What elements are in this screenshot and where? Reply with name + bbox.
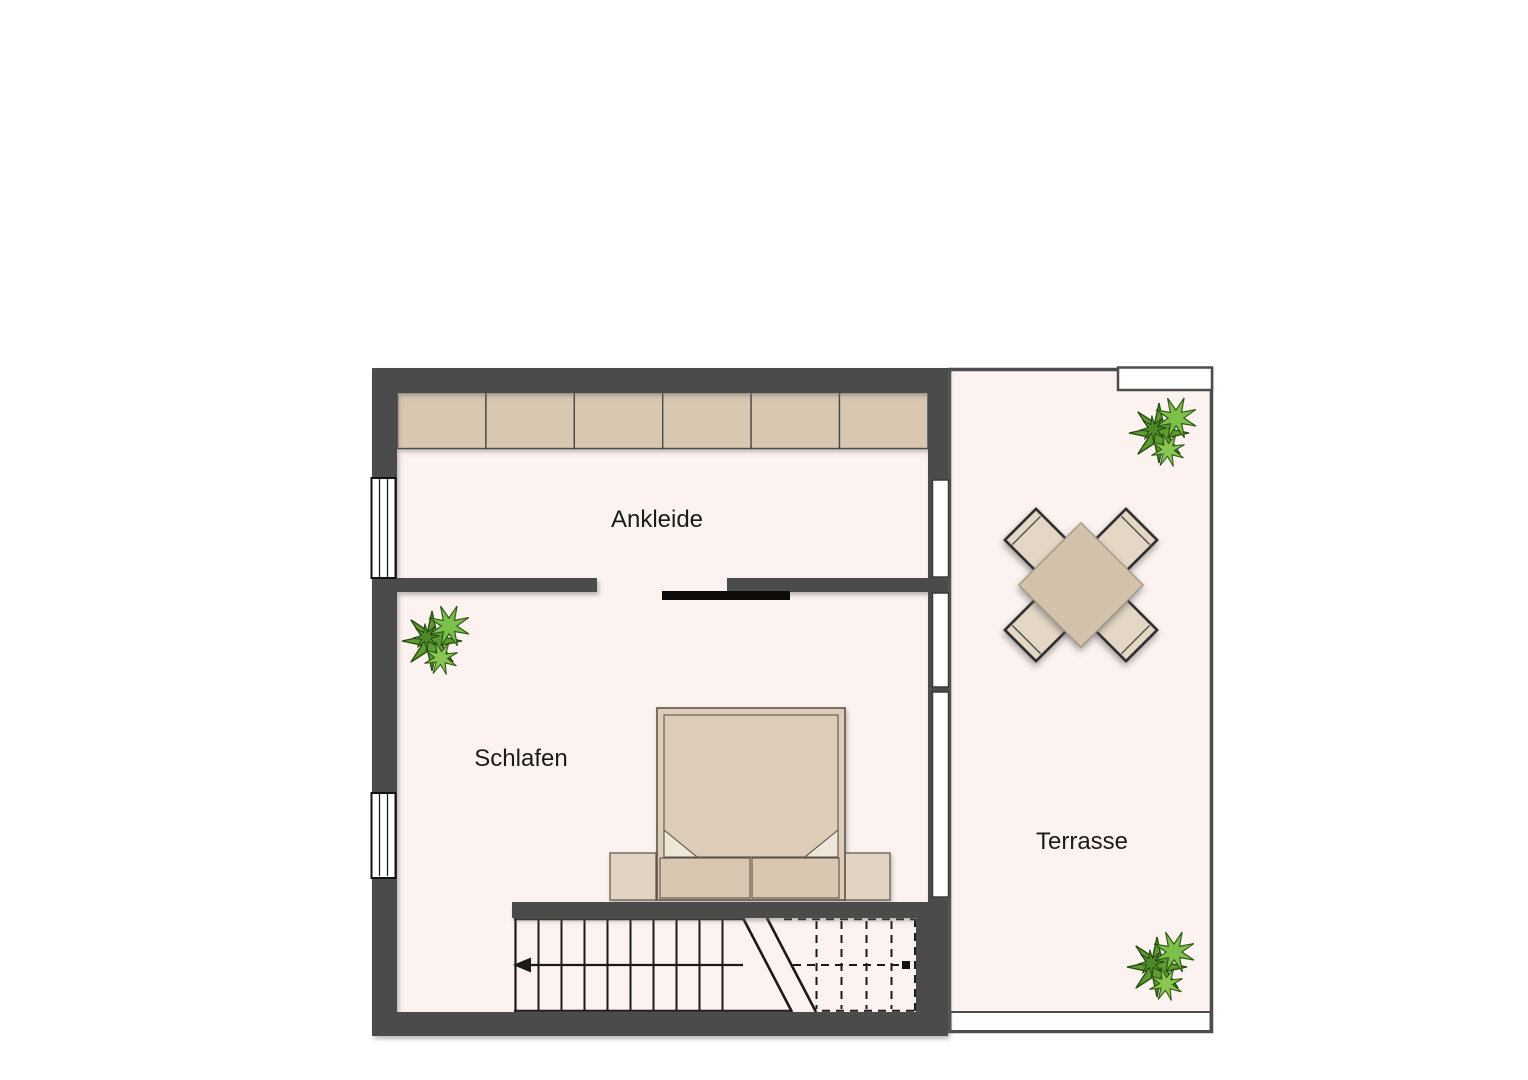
- wall-above-stairs: [512, 902, 948, 918]
- left-window-upper: [372, 478, 396, 578]
- room-label-schlafen: Schlafen: [474, 745, 567, 772]
- pillow-left: [660, 858, 750, 898]
- terrace-seating-group: [1005, 509, 1157, 661]
- wardrobe-unit: [663, 393, 751, 449]
- wardrobe-unit: [751, 393, 839, 449]
- terrace-top-recess: [1118, 368, 1212, 391]
- wardrobe-row: [398, 393, 929, 449]
- wardrobe-unit: [840, 393, 929, 449]
- room-label-terrasse: Terrasse: [1036, 828, 1128, 855]
- terrace-door-schlafen: [933, 692, 949, 897]
- wardrobe-unit: [486, 393, 574, 449]
- nightstand-right: [844, 853, 890, 900]
- terrace-window-schlafen-upper: [933, 593, 949, 687]
- floor-plan-canvas: Ankleide Schlafen Terrasse: [0, 0, 1528, 1080]
- wall-divider-left: [396, 578, 597, 592]
- terrace-area: [950, 368, 1213, 1032]
- wardrobe-unit: [574, 393, 662, 449]
- wardrobe-unit: [398, 393, 486, 449]
- pillow-right: [752, 858, 839, 898]
- sliding-door: [662, 591, 790, 600]
- interior-floor: [372, 368, 948, 1036]
- wall-stair-right-block: [916, 918, 948, 1012]
- wall-divider-right: [727, 578, 948, 592]
- left-window-lower: [372, 793, 396, 878]
- wall-left: [372, 368, 397, 1036]
- wall-bottom: [372, 1012, 948, 1036]
- stair-walk-line-end: [902, 961, 910, 969]
- nightstand-left: [610, 853, 656, 900]
- terrace-floor: [950, 370, 1212, 1032]
- bed-duvet: [664, 715, 838, 857]
- room-label-ankleide: Ankleide: [611, 506, 703, 533]
- terrace-step: [951, 1012, 1211, 1031]
- floor-plan-drawing: Ankleide Schlafen Terrasse: [0, 0, 1528, 1080]
- terrace-window-ankleide: [933, 480, 949, 577]
- wall-top: [372, 368, 948, 393]
